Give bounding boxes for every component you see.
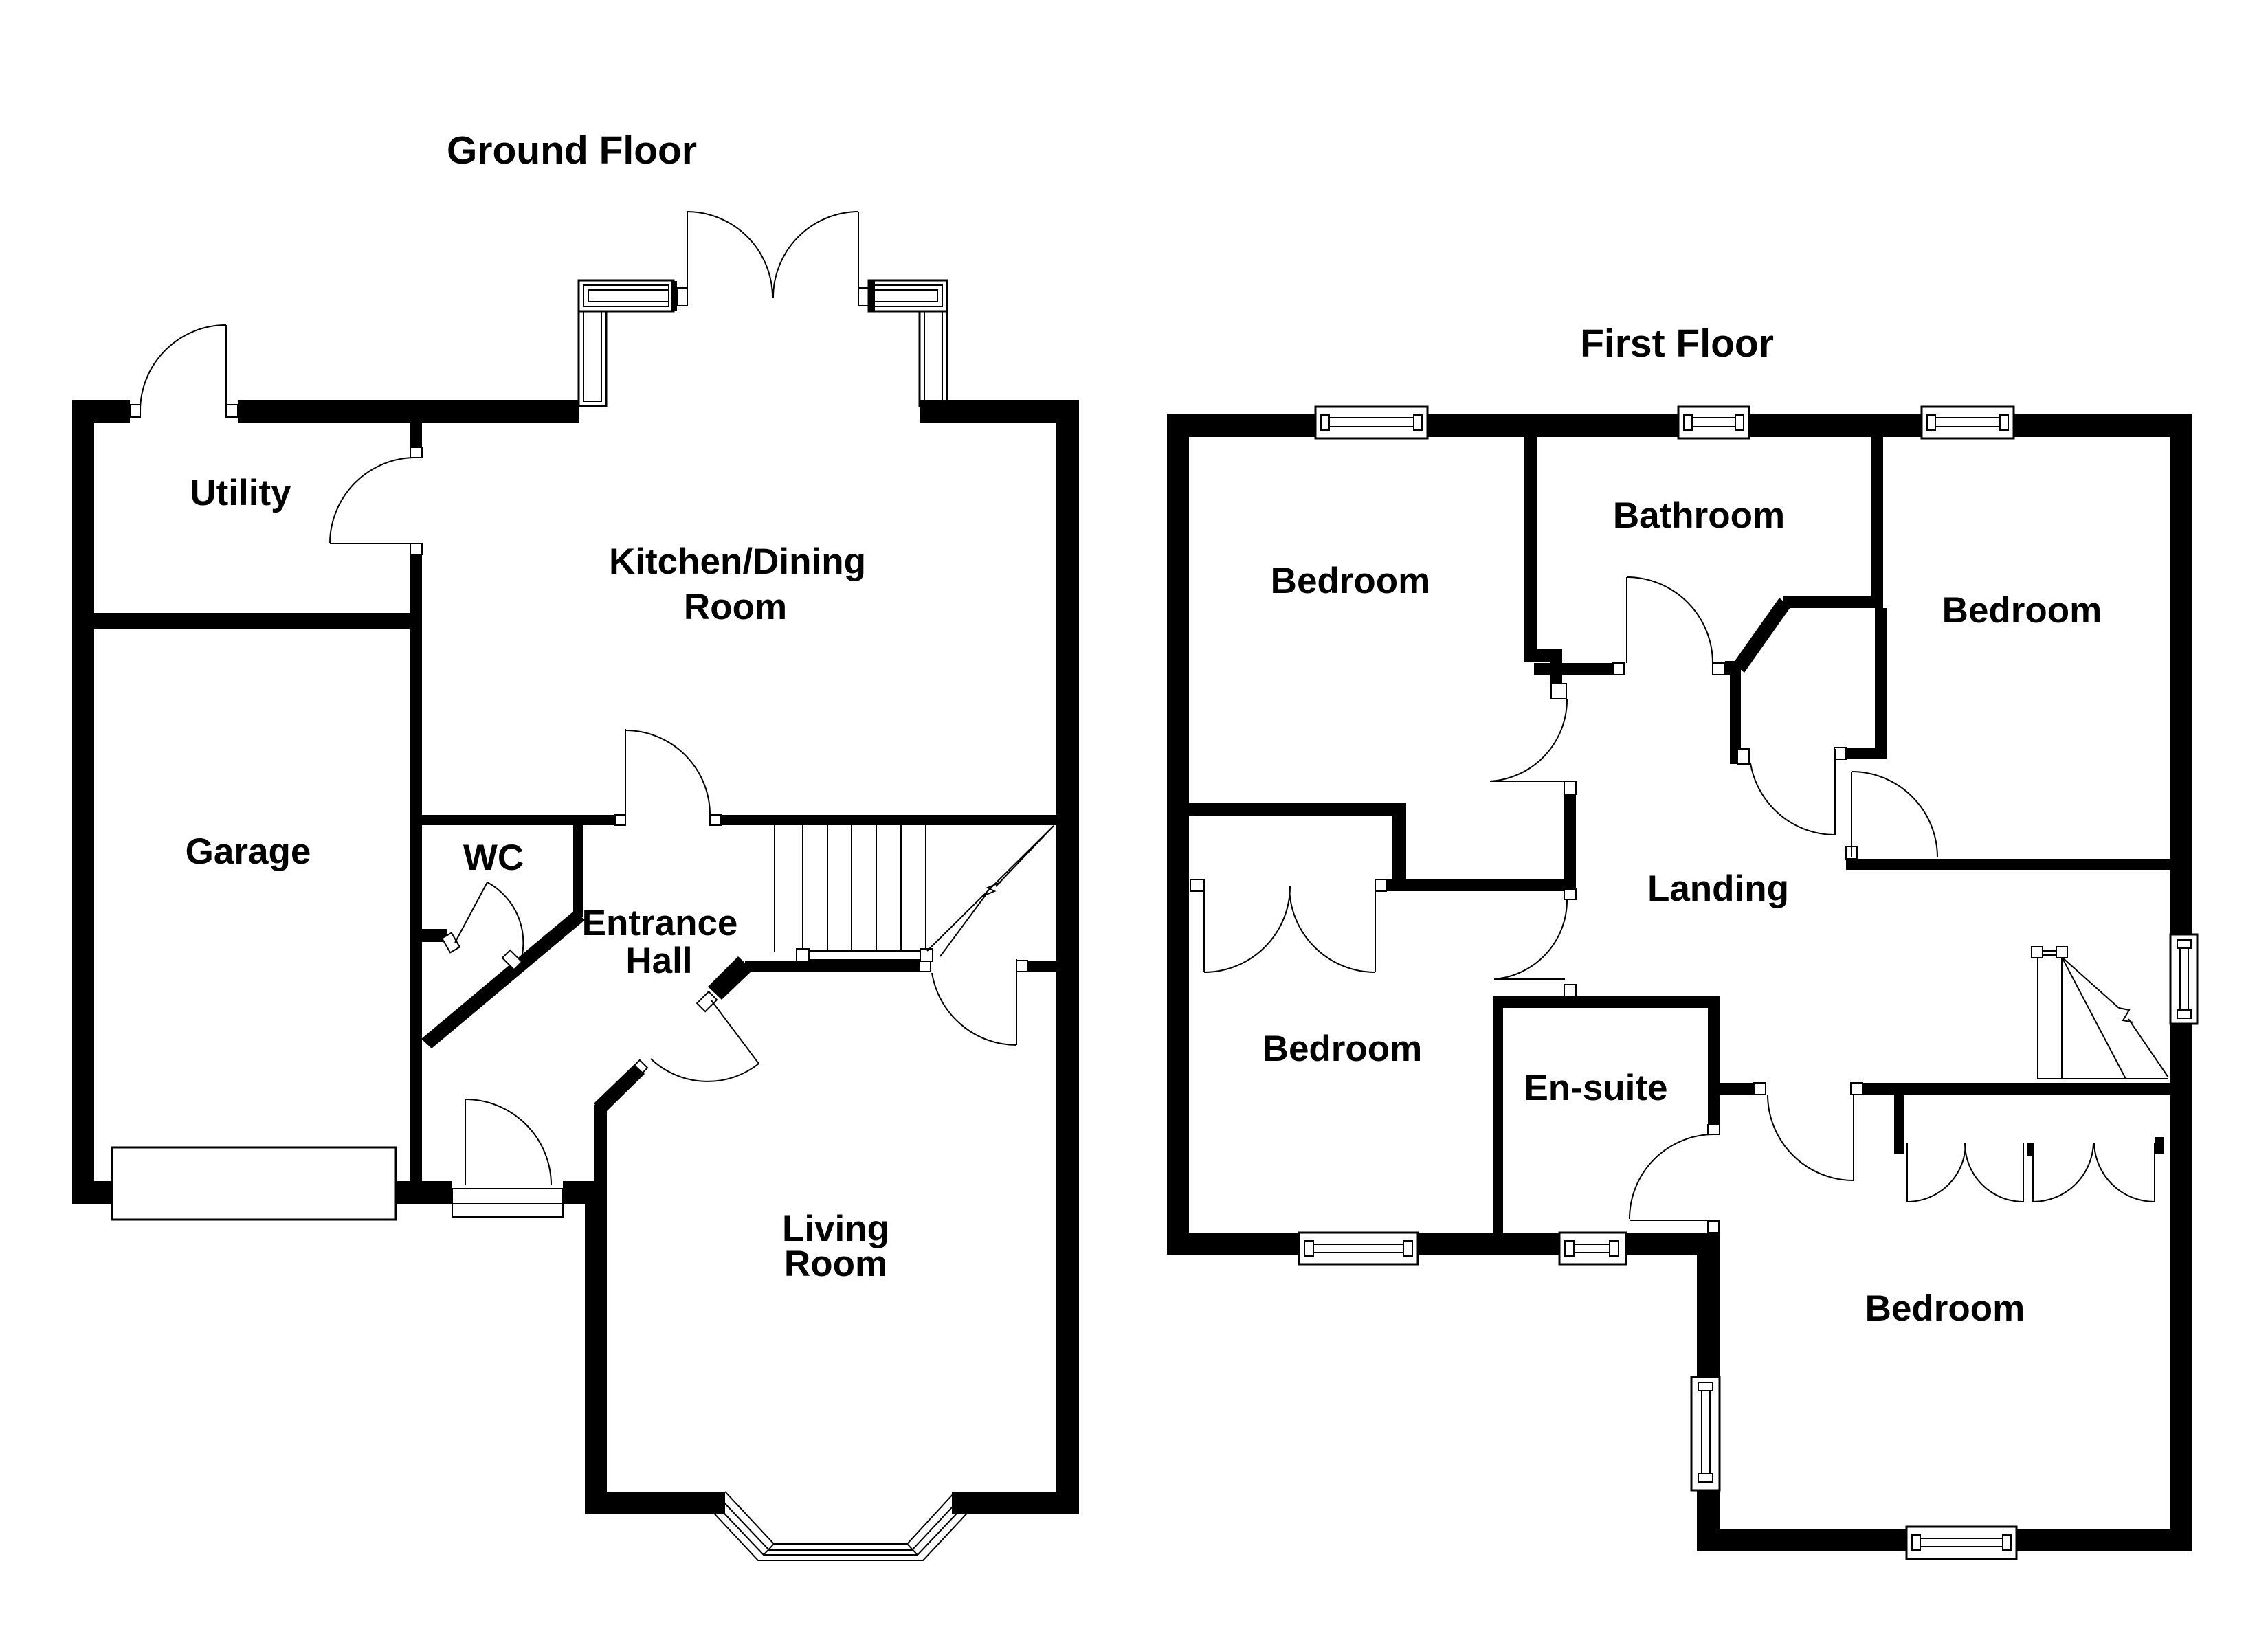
svg-text:First Floor: First Floor — [1580, 322, 1774, 366]
svg-text:Entrance: Entrance — [582, 903, 738, 943]
svg-text:Bedroom: Bedroom — [1865, 1288, 2025, 1329]
svg-text:Garage: Garage — [186, 831, 311, 872]
svg-text:Bedroom: Bedroom — [1271, 561, 1431, 601]
svg-text:Bathroom: Bathroom — [1613, 495, 1785, 536]
svg-text:Ground Floor: Ground Floor — [447, 128, 697, 172]
svg-text:Room: Room — [684, 587, 787, 627]
svg-text:Utility: Utility — [190, 473, 291, 513]
svg-text:Hall: Hall — [625, 941, 692, 981]
svg-text:Bedroom: Bedroom — [1942, 590, 2102, 631]
svg-text:Landing: Landing — [1647, 868, 1789, 909]
svg-text:WC: WC — [463, 838, 524, 878]
svg-text:Kitchen/Dining: Kitchen/Dining — [609, 541, 866, 582]
svg-text:Bedroom: Bedroom — [1263, 1029, 1423, 1069]
svg-text:En-suite: En-suite — [1524, 1068, 1667, 1108]
svg-text:Room: Room — [784, 1244, 887, 1284]
